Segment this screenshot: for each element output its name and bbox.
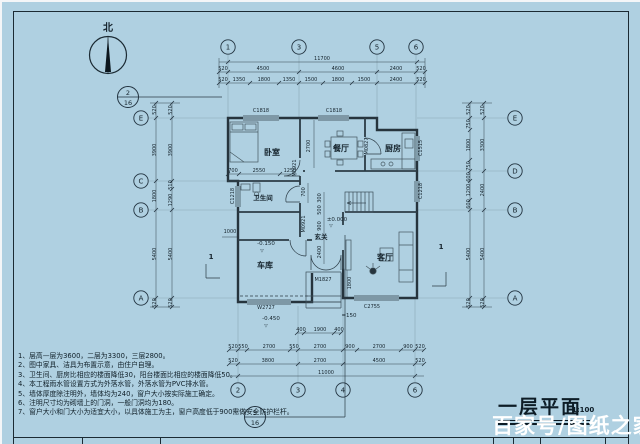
plan-label-28: 750 bbox=[466, 119, 472, 129]
door-symbols bbox=[284, 138, 381, 270]
plan-label-40: 520 bbox=[480, 298, 486, 308]
general-notes: 1、层高—层为3600，二层为3300，三层2800。 2、图中家具、洁具为布置… bbox=[18, 352, 294, 418]
room-kitchen: 厨房 bbox=[385, 143, 401, 153]
north-arrow bbox=[90, 37, 127, 74]
plan-label-5: 2400 bbox=[390, 66, 403, 72]
title-block-divider bbox=[605, 437, 606, 444]
plan-label-38: 2400 bbox=[480, 184, 486, 197]
plan-label-4: 4600 bbox=[332, 66, 345, 72]
detail-den-16: 16 bbox=[251, 419, 259, 427]
plan-label-47: 550 bbox=[289, 344, 299, 350]
section-mark-1-right: 1 bbox=[439, 243, 444, 251]
plan-label-62: 2700 bbox=[306, 140, 312, 153]
section-1-mark-left bbox=[206, 264, 220, 278]
plan-label-21: 520 bbox=[168, 105, 174, 115]
north-label: 北 bbox=[103, 21, 113, 34]
grid-label-3-1: 3 bbox=[297, 43, 301, 51]
plan-label-67: 700 bbox=[301, 187, 307, 197]
drawing-sheet: 北117005204500460024005205201350180013501… bbox=[0, 0, 640, 444]
plan-label-26: 520 bbox=[168, 298, 174, 308]
bed bbox=[230, 122, 258, 162]
grid-label-A-11: A bbox=[139, 294, 144, 302]
grid-label-C-9: C bbox=[139, 177, 144, 185]
plan-label-9: 1800 bbox=[258, 77, 271, 83]
plan-label-17: 3900 bbox=[152, 144, 158, 157]
window-c1818-bedroom: C1818 bbox=[253, 108, 269, 114]
plan-label-63: 300 bbox=[317, 193, 323, 203]
watermark: 百家号/图纸之家 bbox=[492, 410, 640, 440]
plan-label-30: 750 bbox=[466, 161, 472, 171]
plan-label-3: 4500 bbox=[257, 66, 270, 72]
plan-label-32: 1200 bbox=[466, 184, 472, 197]
plan-label-22: 3900 bbox=[168, 144, 174, 157]
plan-label-35: 520 bbox=[466, 298, 472, 308]
grid-label-6-3: 6 bbox=[414, 43, 419, 51]
plan-label-52: 520 bbox=[415, 344, 425, 350]
plan-label-6: 520 bbox=[416, 66, 426, 72]
plan-label-89: ▽ bbox=[329, 224, 333, 229]
level-minus450: -0.450 bbox=[262, 316, 280, 322]
window-c1515-kitchen: C1515 bbox=[418, 140, 424, 156]
plan-label-69: 1000 bbox=[224, 229, 237, 235]
grid-label-D-13: D bbox=[512, 167, 517, 175]
plan-label-58: 11000 bbox=[318, 370, 334, 376]
door-m0827-kitchen: M0827 bbox=[364, 137, 370, 154]
plan-label-55: 2700 bbox=[314, 358, 327, 364]
plan-label-49: 900 bbox=[345, 344, 355, 350]
step-note: =150 bbox=[341, 313, 357, 319]
grid-label-3-5: 3 bbox=[296, 386, 300, 394]
plan-label-37: 3300 bbox=[480, 139, 486, 152]
title-block-divider bbox=[513, 437, 514, 444]
plan-label-27: 520 bbox=[466, 105, 472, 115]
plan-label-93: ▽ bbox=[264, 324, 268, 329]
plan-label-2: 520 bbox=[218, 66, 228, 72]
room-dining: 餐厅 bbox=[332, 143, 349, 153]
title-block-divider bbox=[493, 437, 494, 444]
grid-label-6-7: 6 bbox=[413, 386, 418, 394]
plan-label-7: 520 bbox=[218, 77, 228, 83]
plan-label-59: 700 bbox=[228, 168, 238, 174]
plan-label-31: 600 bbox=[466, 172, 472, 182]
plan-label-51: 900 bbox=[403, 344, 413, 350]
plan-label-12: 1800 bbox=[332, 77, 345, 83]
note-7: 7、窗户大小和门大小为适宜大小，以具体施工为主，窗户高度低于900需做安全防护栏… bbox=[18, 408, 294, 417]
plan-label-10: 1350 bbox=[283, 77, 296, 83]
note-4: 4、本工程雨水管设置方式为外落水管，外落水管为PVC排水管。 bbox=[18, 380, 294, 389]
level-minus150: -0.150 bbox=[257, 241, 275, 247]
plan-label-45: 550 bbox=[238, 344, 248, 350]
plan-label-60: 2550 bbox=[253, 168, 266, 174]
plan-label-11: 1500 bbox=[305, 77, 318, 83]
plan-label-13: 1500 bbox=[358, 77, 371, 83]
grid-label-B-10: B bbox=[139, 206, 144, 214]
plan-label-16: 520 bbox=[152, 105, 158, 115]
grid-label-4-6: 4 bbox=[341, 386, 346, 394]
plan-label-33: 600 bbox=[466, 199, 472, 209]
grid-label-B-14: B bbox=[513, 206, 518, 214]
plan-label-66: 2400 bbox=[317, 246, 323, 259]
plant-icon bbox=[366, 263, 380, 274]
plan-label-43: 400 bbox=[334, 327, 344, 333]
plan-label-36: 520 bbox=[480, 105, 486, 115]
plan-label-14: 2400 bbox=[390, 77, 403, 83]
note-2: 2、图中家具、洁具为布置示意，由住户自理。 bbox=[18, 361, 294, 370]
plan-label-48: 2700 bbox=[314, 344, 327, 350]
plan-label-25: 5400 bbox=[168, 248, 174, 261]
title-block-divider bbox=[82, 437, 83, 444]
plan-label-65: 900 bbox=[317, 221, 323, 231]
plan-label-57: 520 bbox=[415, 358, 425, 364]
plan-label-44: 520 bbox=[228, 344, 238, 350]
grid-label-E-8: E bbox=[139, 114, 143, 122]
title-block-divider bbox=[160, 437, 161, 444]
plan-label-24: 1290 bbox=[168, 194, 174, 207]
grid-label-5-2: 5 bbox=[375, 43, 379, 51]
door-m1827-entry: M1827 bbox=[314, 277, 331, 283]
grid-label-A-15: A bbox=[513, 294, 518, 302]
window-w2727-garage: W2727 bbox=[257, 305, 275, 311]
plan-label-8: 1350 bbox=[233, 77, 246, 83]
plan-label-29: 1800 bbox=[466, 139, 472, 152]
plan-label-68: 1800 bbox=[347, 277, 353, 290]
note-1: 1、层高—层为3600，二层为3300，三层2800。 bbox=[18, 352, 294, 361]
title-block-divider bbox=[540, 437, 541, 444]
plan-label-19: 5400 bbox=[152, 248, 158, 261]
room-bedroom: 卧室 bbox=[264, 147, 280, 157]
section-1-mark-right bbox=[432, 272, 446, 286]
room-bathroom: 卫生间 bbox=[253, 193, 273, 202]
level-zero: ±0.000 bbox=[327, 217, 348, 223]
door-m0921-bath: M0921 bbox=[301, 215, 307, 232]
note-5: 5、墙体厚度除注明外，墙体均为240，窗户大小按实际施工确定。 bbox=[18, 390, 294, 399]
plan-label-91: ▽ bbox=[260, 249, 264, 254]
plan-label-42: 1900 bbox=[314, 327, 327, 333]
plan-label-23: 510 bbox=[168, 180, 174, 190]
plan-label-20: 520 bbox=[152, 298, 158, 308]
plan-label-34: 5400 bbox=[466, 248, 472, 261]
room-foyer: 玄关 bbox=[315, 232, 329, 241]
plan-label-39: 5400 bbox=[480, 248, 486, 261]
window-c2755-living: C2755 bbox=[364, 304, 380, 310]
grid-label-E-12: E bbox=[513, 114, 517, 122]
note-3: 3、卫生间、厨房比相应的楼面降低30，阳台楼面比相应的楼面降低50。 bbox=[18, 371, 294, 380]
plan-label-64: 500 bbox=[317, 205, 323, 215]
title-block-top-line bbox=[13, 437, 629, 438]
window-c1218-east: C1218 bbox=[418, 183, 424, 199]
plan-label-56: 4500 bbox=[373, 358, 386, 364]
plan-label-15: 520 bbox=[416, 77, 426, 83]
room-garage: 车库 bbox=[257, 260, 273, 270]
plan-label-1: 11700 bbox=[314, 56, 330, 62]
grid-label-1-0: 1 bbox=[226, 43, 230, 51]
section-mark-1-left: 1 bbox=[209, 253, 214, 261]
door-m0921-bedroom: M0921 bbox=[292, 159, 298, 176]
stairs bbox=[345, 192, 373, 212]
detail-den-16: 16 bbox=[124, 99, 132, 107]
window-c1218-bath: C1218 bbox=[230, 188, 236, 204]
window-c1818-dining: C1818 bbox=[326, 108, 342, 114]
plan-label-41: 400 bbox=[296, 327, 306, 333]
room-living: 客厅 bbox=[376, 252, 393, 262]
plan-label-46: 2700 bbox=[263, 344, 276, 350]
plan-label-50: 2700 bbox=[373, 344, 386, 350]
detail-num-2: 2 bbox=[126, 89, 130, 97]
plan-label-18: 1800 bbox=[152, 190, 158, 203]
